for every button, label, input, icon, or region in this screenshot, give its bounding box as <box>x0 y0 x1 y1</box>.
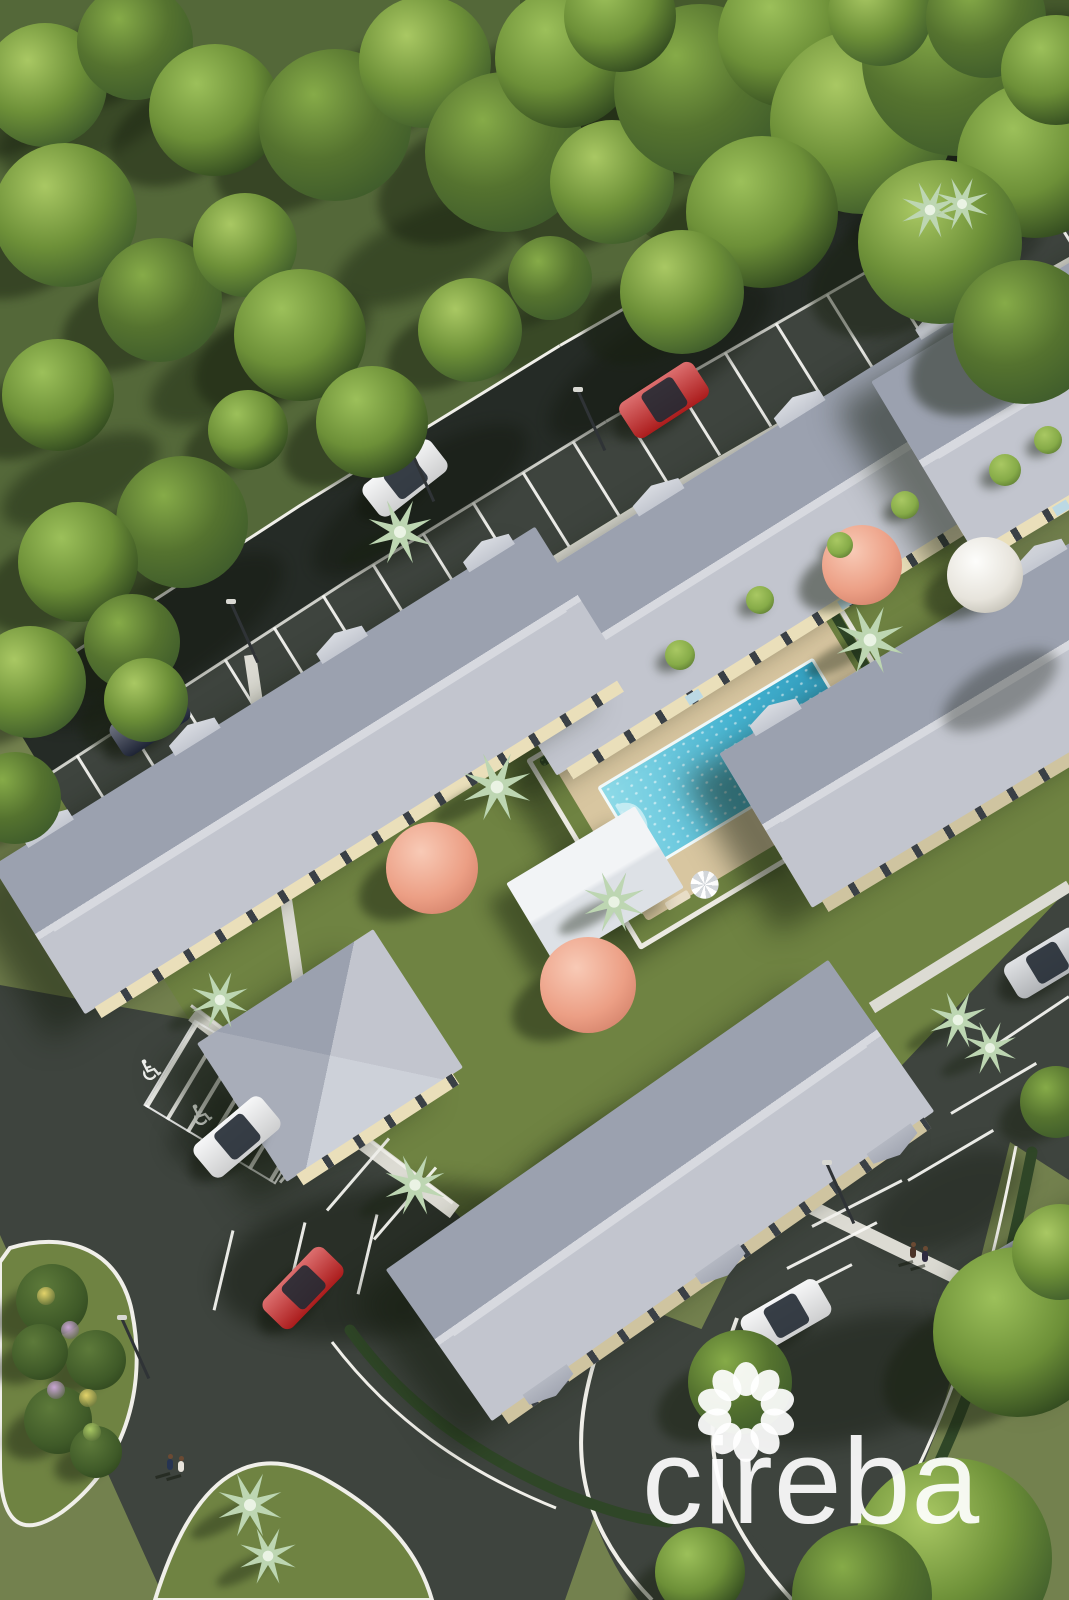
tree <box>508 236 592 320</box>
aerial-site-rendering: cireba ♿♿ <box>0 0 1069 1600</box>
flower-bed <box>83 1423 101 1441</box>
flower-bed <box>79 1389 97 1407</box>
flowering-tree <box>540 937 636 1033</box>
flowering-tree <box>386 822 478 914</box>
pedestrian <box>910 1247 916 1258</box>
tree <box>891 491 919 519</box>
white-flowering-tree <box>947 537 1023 613</box>
pedestrian-head <box>179 1456 184 1461</box>
tree <box>208 390 288 470</box>
flower-bed <box>37 1287 55 1305</box>
tree <box>418 278 522 382</box>
tree <box>827 532 853 558</box>
pedestrian <box>167 1459 173 1470</box>
pedestrian-head <box>923 1246 928 1251</box>
tree <box>2 339 114 451</box>
tree <box>989 454 1021 486</box>
tree <box>1034 426 1062 454</box>
tree <box>620 230 744 354</box>
tree <box>665 640 695 670</box>
pedestrian <box>178 1461 184 1472</box>
shrub <box>12 1324 68 1380</box>
shrub <box>66 1330 126 1390</box>
flower-bed <box>61 1321 79 1339</box>
street-lamp-head <box>117 1315 127 1320</box>
cireba-brand-text: cireba <box>642 1420 980 1542</box>
tree <box>104 658 188 742</box>
street-lamp-head <box>822 1160 832 1165</box>
pedestrian <box>922 1251 928 1262</box>
pedestrian-head <box>168 1454 173 1459</box>
tree <box>746 586 774 614</box>
pedestrian-head <box>911 1242 916 1247</box>
flower-bed <box>47 1381 65 1399</box>
street-lamp-head <box>226 599 236 604</box>
tree <box>316 366 428 478</box>
street-lamp-head <box>573 387 583 392</box>
